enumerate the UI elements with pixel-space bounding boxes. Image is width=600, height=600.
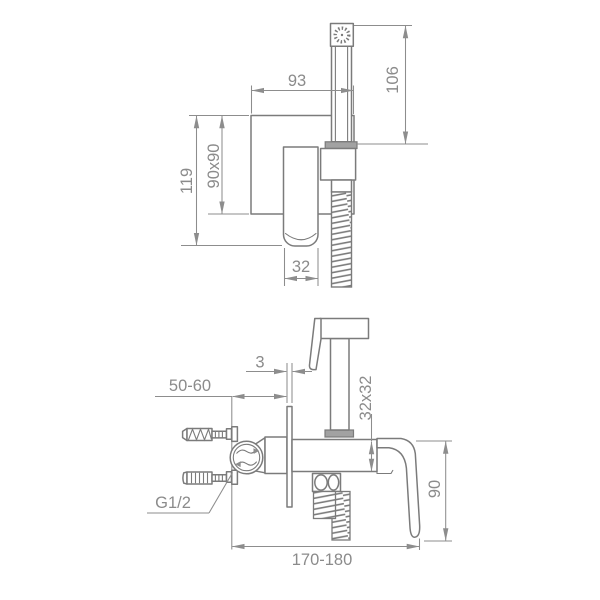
valve-block [265, 437, 287, 474]
hose-nut-facet [315, 475, 327, 490]
hand-shower-column [332, 46, 352, 142]
lever-blade [377, 439, 420, 538]
dim-50-60-label: 50-60 [169, 377, 211, 395]
dim-3-label: 3 [255, 354, 264, 372]
shower-hose-front [332, 192, 352, 287]
hose-nut-facet [328, 475, 338, 490]
lever-joint-detail [377, 470, 393, 473]
shower-base-flange [325, 430, 354, 437]
wall-anchor-bottom [183, 470, 238, 484]
spray-face-center [341, 34, 343, 36]
dim-32: 32 [285, 248, 319, 286]
side-view: 3 50-60 32x32 90 170-180 [147, 319, 452, 570]
drawing-canvas: 93 106 119 90x90 32 [0, 0, 600, 600]
technical-drawing-page: 93 106 119 90x90 32 [0, 0, 600, 600]
dim-90: 90 [416, 441, 452, 541]
dim-90x90: 90x90 [205, 116, 249, 214]
dim-170-180-label: 170-180 [292, 551, 353, 569]
g12-thread-label: G1/2 [155, 494, 191, 512]
shower-handle-side [331, 339, 350, 431]
dim-32x32-label: 32x32 [357, 376, 375, 421]
dim-50-60: 50-60 [155, 377, 286, 397]
dim-106-label: 106 [384, 66, 402, 94]
dim-32-label: 32 [292, 258, 310, 276]
hose-connector-front [332, 180, 352, 192]
lever-handle [377, 439, 420, 538]
dim-93-label: 93 [288, 72, 306, 90]
shower-hose-side [314, 492, 336, 519]
screw-head [227, 429, 232, 440]
dim-119-label: 119 [178, 168, 196, 194]
dim-90x90-label: 90x90 [205, 144, 223, 189]
shower-holder [321, 149, 356, 181]
dim-90-label: 90 [426, 480, 444, 498]
spray-nozzle-side [309, 319, 321, 370]
wall-anchor-top [183, 427, 238, 442]
dim-3: 3 [246, 354, 312, 404]
mixer-body-bar [292, 440, 377, 472]
shower-collar [325, 142, 357, 149]
dim-106: 106 [354, 26, 428, 145]
inlet-flange [232, 427, 238, 442]
dim-170-180: 170-180 [232, 539, 419, 570]
front-view: 93 106 119 90x90 32 [178, 24, 428, 288]
inlet-flange [232, 470, 238, 484]
mixing-valve-cap [230, 441, 263, 474]
shower-head-side [320, 319, 369, 339]
control-handle [284, 147, 319, 246]
